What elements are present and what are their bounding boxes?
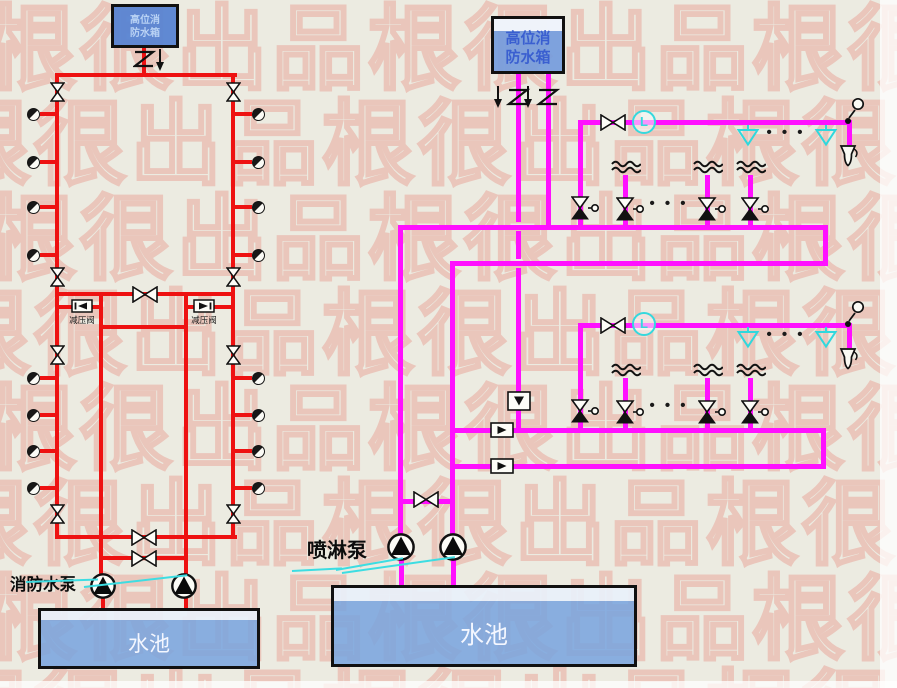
pipe xyxy=(235,112,252,116)
pipe xyxy=(235,486,252,490)
sprinkler-deflector-icon xyxy=(611,363,641,377)
signal-valve-icon xyxy=(741,400,769,424)
pipe xyxy=(821,428,826,469)
gate-valve-icon xyxy=(226,345,241,365)
water-surface xyxy=(41,611,257,620)
open-sprinkler-icon xyxy=(814,327,838,349)
pipe xyxy=(40,449,57,453)
ellipsis: • • • xyxy=(640,195,698,213)
check-valve-box-icon xyxy=(507,391,531,411)
pressure-gauge-icon xyxy=(843,97,865,125)
signal-valve-icon xyxy=(571,399,599,423)
pipe xyxy=(516,231,521,259)
sprinkler-deflector-icon xyxy=(693,160,723,174)
butterfly-valve-icon xyxy=(600,317,626,334)
watermark-row: 根很出品根很出品根很出品根很出品 xyxy=(0,165,897,298)
prv-label: 减压阀 xyxy=(64,314,100,326)
butterfly-valve-icon xyxy=(413,491,439,508)
pipe xyxy=(451,558,456,588)
water-pool: 水池 xyxy=(331,585,637,667)
tank-label-line1: 高位消 xyxy=(494,29,562,48)
hydrant-icon xyxy=(252,156,265,169)
fire-protection-schematic: 根很出品根很出品根很出品根很出品根很出品根很出品根很出品根很出品根很出品根很出品… xyxy=(0,0,897,688)
pipe xyxy=(101,325,188,329)
check-valve-icon xyxy=(523,84,561,112)
hydrant-icon xyxy=(252,482,265,495)
butterfly-valve-icon xyxy=(600,114,626,131)
gate-valve-icon xyxy=(226,504,241,524)
flow-indicator-letter: L xyxy=(640,114,648,129)
hydrant-icon xyxy=(27,409,40,422)
hydrant-icon xyxy=(252,372,265,385)
ellipsis: • • • xyxy=(758,326,814,344)
gate-valve-icon xyxy=(50,345,65,365)
pipe xyxy=(823,225,828,266)
check-valve-box-icon xyxy=(490,458,514,474)
gate-valve-icon xyxy=(50,504,65,524)
pipe xyxy=(99,294,103,575)
pipe xyxy=(55,73,237,77)
fire-pump-label: 消防水泵 xyxy=(10,571,76,595)
pipe xyxy=(398,225,828,230)
tank-label-line2: 防水箱 xyxy=(494,48,562,67)
high-level-tank: 高位消 防水箱 xyxy=(111,4,179,48)
pipe xyxy=(235,413,252,417)
pipe xyxy=(40,413,57,417)
hydrant-icon xyxy=(27,108,40,121)
pipe xyxy=(40,253,57,257)
hydrant-icon xyxy=(27,372,40,385)
high-level-tank: 高位消 防水箱 xyxy=(491,16,565,74)
spray-pump-label: 喷淋泵 xyxy=(307,534,367,563)
butterfly-valve-icon xyxy=(131,550,157,567)
bottom-edge-strip xyxy=(0,681,897,688)
flow-indicator-icon: L xyxy=(632,312,656,336)
flow-indicator-letter: L xyxy=(640,316,648,331)
hydrant-icon xyxy=(252,201,265,214)
drain-funnel-icon xyxy=(838,348,860,372)
pool-label: 水池 xyxy=(41,628,257,658)
drain-funnel-icon xyxy=(838,145,860,169)
hydrant-icon xyxy=(27,482,40,495)
hydrant-icon xyxy=(27,156,40,169)
pipe xyxy=(398,225,403,536)
hydrant-icon xyxy=(252,409,265,422)
pipe xyxy=(235,449,252,453)
sprinkler-deflector-icon xyxy=(611,160,641,174)
pipe xyxy=(40,486,57,490)
signal-valve-icon xyxy=(571,196,599,220)
pipe xyxy=(40,205,57,209)
gate-valve-icon xyxy=(226,82,241,102)
gate-valve-icon xyxy=(50,82,65,102)
pipe xyxy=(235,376,252,380)
pipe xyxy=(184,294,188,575)
gate-valve-icon xyxy=(226,267,241,287)
open-sprinkler-icon xyxy=(736,327,760,349)
pipe xyxy=(235,160,252,164)
signal-valve-icon xyxy=(698,400,726,424)
pipe xyxy=(235,253,252,257)
butterfly-valve-icon xyxy=(131,529,157,546)
hydrant-icon xyxy=(27,249,40,262)
hydrant-icon xyxy=(252,249,265,262)
tank-label-line2: 防水箱 xyxy=(114,27,176,40)
open-sprinkler-icon xyxy=(814,125,838,147)
check-valve-box-icon xyxy=(490,422,514,438)
water-surface xyxy=(334,588,634,601)
open-sprinkler-icon xyxy=(736,125,760,147)
pressure-reducing-valve-icon xyxy=(71,299,93,313)
hydrant-icon xyxy=(27,201,40,214)
prv-label: 减压阀 xyxy=(186,314,222,326)
hydrant-icon xyxy=(252,445,265,458)
pipe xyxy=(450,261,455,536)
right-edge-strip xyxy=(880,0,897,688)
pipe xyxy=(40,376,57,380)
pool-label: 水池 xyxy=(334,615,634,650)
pipe xyxy=(235,205,252,209)
pressure-reducing-valve-icon xyxy=(193,299,215,313)
sprinkler-deflector-icon xyxy=(736,363,766,377)
sprinkler-deflector-icon xyxy=(693,363,723,377)
check-valve-icon xyxy=(133,46,171,72)
sprinkler-deflector-icon xyxy=(736,160,766,174)
pipe xyxy=(40,112,57,116)
water-pool: 水池 xyxy=(38,608,260,669)
pipe xyxy=(40,160,57,164)
signal-valve-icon xyxy=(698,197,726,221)
flow-indicator-icon: L xyxy=(632,110,656,134)
signal-valve-icon xyxy=(741,197,769,221)
tank-label-line1: 高位消 xyxy=(114,14,176,27)
pipe xyxy=(452,261,828,266)
pressure-gauge-icon xyxy=(843,300,865,328)
hydrant-icon xyxy=(252,108,265,121)
gate-valve-icon xyxy=(50,267,65,287)
hydrant-icon xyxy=(27,445,40,458)
ellipsis: • • • xyxy=(640,397,698,415)
butterfly-valve-icon xyxy=(132,286,158,303)
ellipsis: • • • xyxy=(758,124,814,142)
